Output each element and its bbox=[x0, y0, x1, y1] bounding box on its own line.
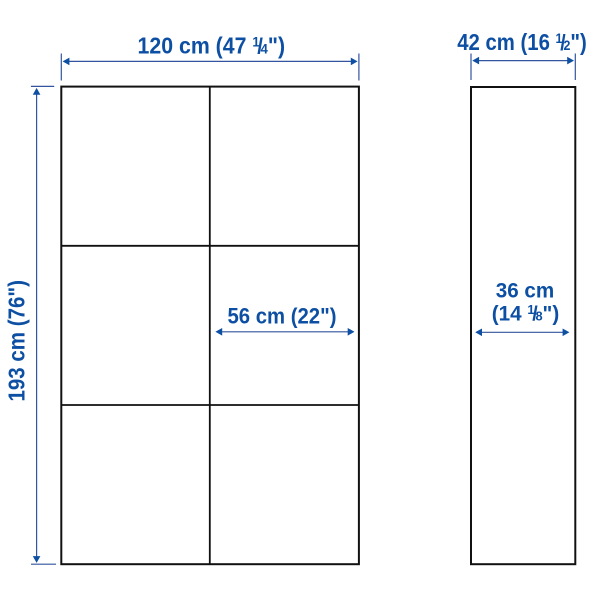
svg-text:42 cm (16 1/2"): 42 cm (16 1/2") bbox=[457, 29, 587, 55]
svg-text:56 cm (22"): 56 cm (22") bbox=[228, 304, 337, 329]
svg-text:120 cm (47 1/4"): 120 cm (47 1/4") bbox=[138, 33, 286, 59]
svg-text:(14 1/8"): (14 1/8") bbox=[492, 302, 560, 326]
svg-text:36 cm: 36 cm bbox=[496, 279, 555, 302]
svg-text:193 cm (76"): 193 cm (76") bbox=[4, 280, 30, 402]
